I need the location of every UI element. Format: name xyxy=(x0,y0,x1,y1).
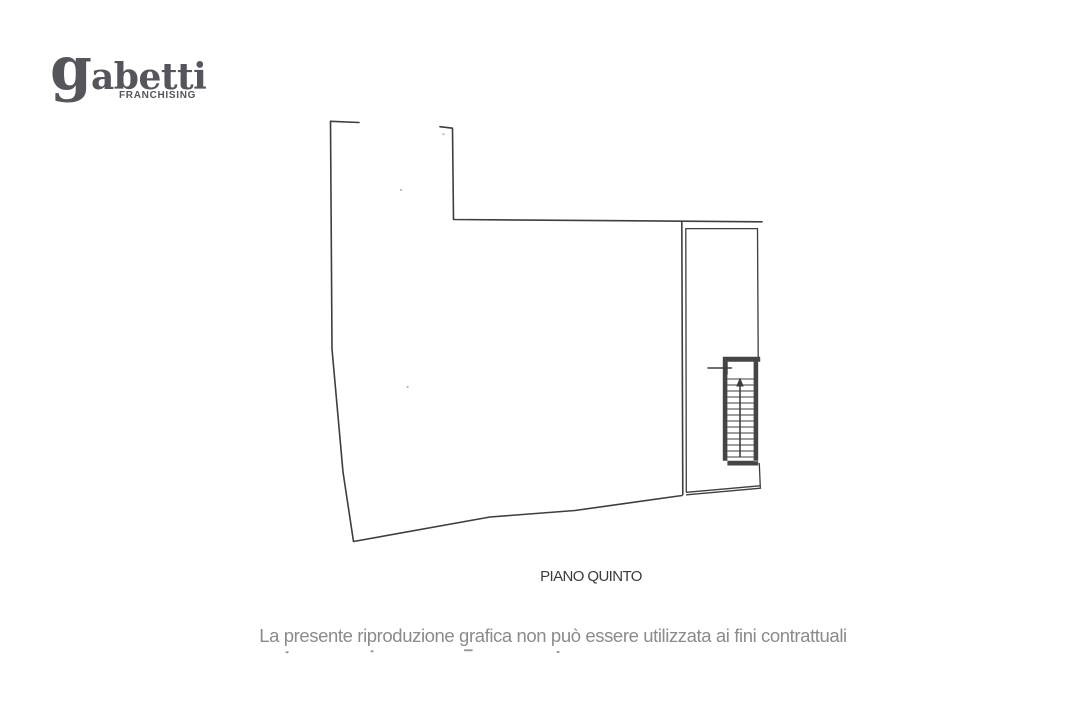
floor-label: PIANO QUINTO xyxy=(540,568,642,585)
stair-walls xyxy=(723,357,760,466)
stair-landing-cross-mark xyxy=(708,362,732,374)
outline-left-bottom-edge xyxy=(331,121,683,541)
outline-top-segment-2 xyxy=(440,127,762,222)
clipped-second-line-marks xyxy=(287,650,559,652)
plan-outline xyxy=(331,121,763,541)
staircase xyxy=(708,357,760,466)
scan-specks xyxy=(401,134,444,387)
outline-top-segment-1 xyxy=(331,121,360,122)
annex-right-lower-edge xyxy=(759,464,760,488)
disclaimer-text: La presente riproduzione grafica non può… xyxy=(259,625,847,647)
floor-plan xyxy=(0,0,1080,720)
outline-right-wall xyxy=(682,222,683,495)
